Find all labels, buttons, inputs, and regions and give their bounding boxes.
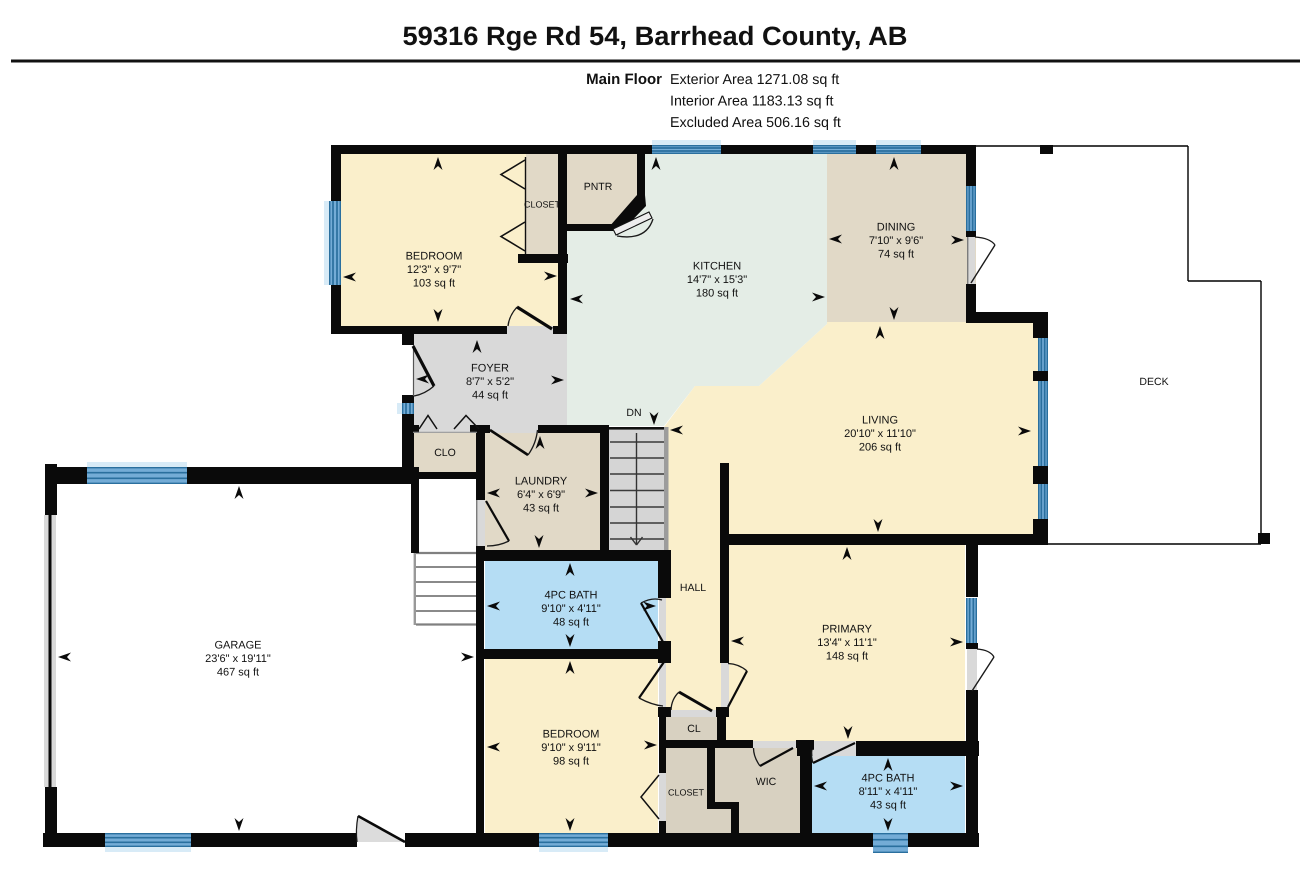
svg-text:206 sq ft: 206 sq ft [859,442,901,454]
svg-text:20'10" x 11'10": 20'10" x 11'10" [844,428,916,440]
svg-text:148 sq ft: 148 sq ft [826,651,868,663]
svg-text:CL: CL [687,723,701,735]
svg-text:59316 Rge Rd 54, Barrhead Coun: 59316 Rge Rd 54, Barrhead County, AB [403,21,908,51]
svg-text:14'7" x 15'3": 14'7" x 15'3" [687,274,747,286]
svg-text:23'6" x 19'11": 23'6" x 19'11" [205,653,271,665]
svg-text:CLO: CLO [434,447,456,459]
svg-text:LIVING: LIVING [862,415,898,427]
svg-text:BEDROOM: BEDROOM [406,251,463,263]
svg-text:48 sq ft: 48 sq ft [553,617,589,629]
svg-text:9'10" x 9'11": 9'10" x 9'11" [541,742,601,754]
svg-text:103 sq ft: 103 sq ft [413,278,455,290]
svg-text:180 sq ft: 180 sq ft [696,288,738,300]
svg-text:Interior Area 1183.13 sq ft: Interior Area 1183.13 sq ft [670,94,833,110]
svg-text:CLOSET: CLOSET [668,788,705,798]
svg-text:8'11" x 4'11": 8'11" x 4'11" [859,786,918,798]
svg-text:4PC BATH: 4PC BATH [545,590,598,602]
svg-text:PRIMARY: PRIMARY [822,624,873,636]
svg-text:44 sq ft: 44 sq ft [472,390,508,402]
svg-text:DECK: DECK [1139,376,1168,388]
svg-text:Excluded Area 506.16 sq ft: Excluded Area 506.16 sq ft [670,115,841,131]
svg-text:CLOSET: CLOSET [524,200,561,210]
svg-text:GARAGE: GARAGE [214,640,261,652]
svg-text:Exterior Area 1271.08 sq ft: Exterior Area 1271.08 sq ft [670,72,839,88]
svg-text:9'10" x 4'11": 9'10" x 4'11" [541,603,601,615]
svg-text:12'3" x 9'7": 12'3" x 9'7" [407,264,461,276]
svg-text:6'4" x 6'9": 6'4" x 6'9" [517,489,565,501]
svg-text:43 sq ft: 43 sq ft [523,503,559,515]
svg-text:Main Floor: Main Floor [586,71,662,88]
svg-text:FOYER: FOYER [471,363,509,375]
svg-text:13'4" x 11'1": 13'4" x 11'1" [817,637,877,649]
svg-text:HALL: HALL [680,582,706,594]
svg-text:BEDROOM: BEDROOM [543,729,600,741]
svg-text:98 sq ft: 98 sq ft [553,756,589,768]
svg-text:DN: DN [626,407,641,419]
svg-text:PNTR: PNTR [584,181,613,193]
svg-text:43 sq ft: 43 sq ft [870,800,906,812]
svg-text:74 sq ft: 74 sq ft [878,249,914,261]
svg-text:7'10" x 9'6": 7'10" x 9'6" [869,235,923,247]
svg-text:WIC: WIC [756,776,777,788]
svg-text:8'7" x 5'2": 8'7" x 5'2" [466,376,514,388]
svg-text:LAUNDRY: LAUNDRY [515,476,568,488]
svg-text:4PC BATH: 4PC BATH [862,773,915,785]
svg-text:DINING: DINING [877,222,916,234]
svg-text:467 sq ft: 467 sq ft [217,667,259,679]
svg-text:KITCHEN: KITCHEN [693,261,741,273]
